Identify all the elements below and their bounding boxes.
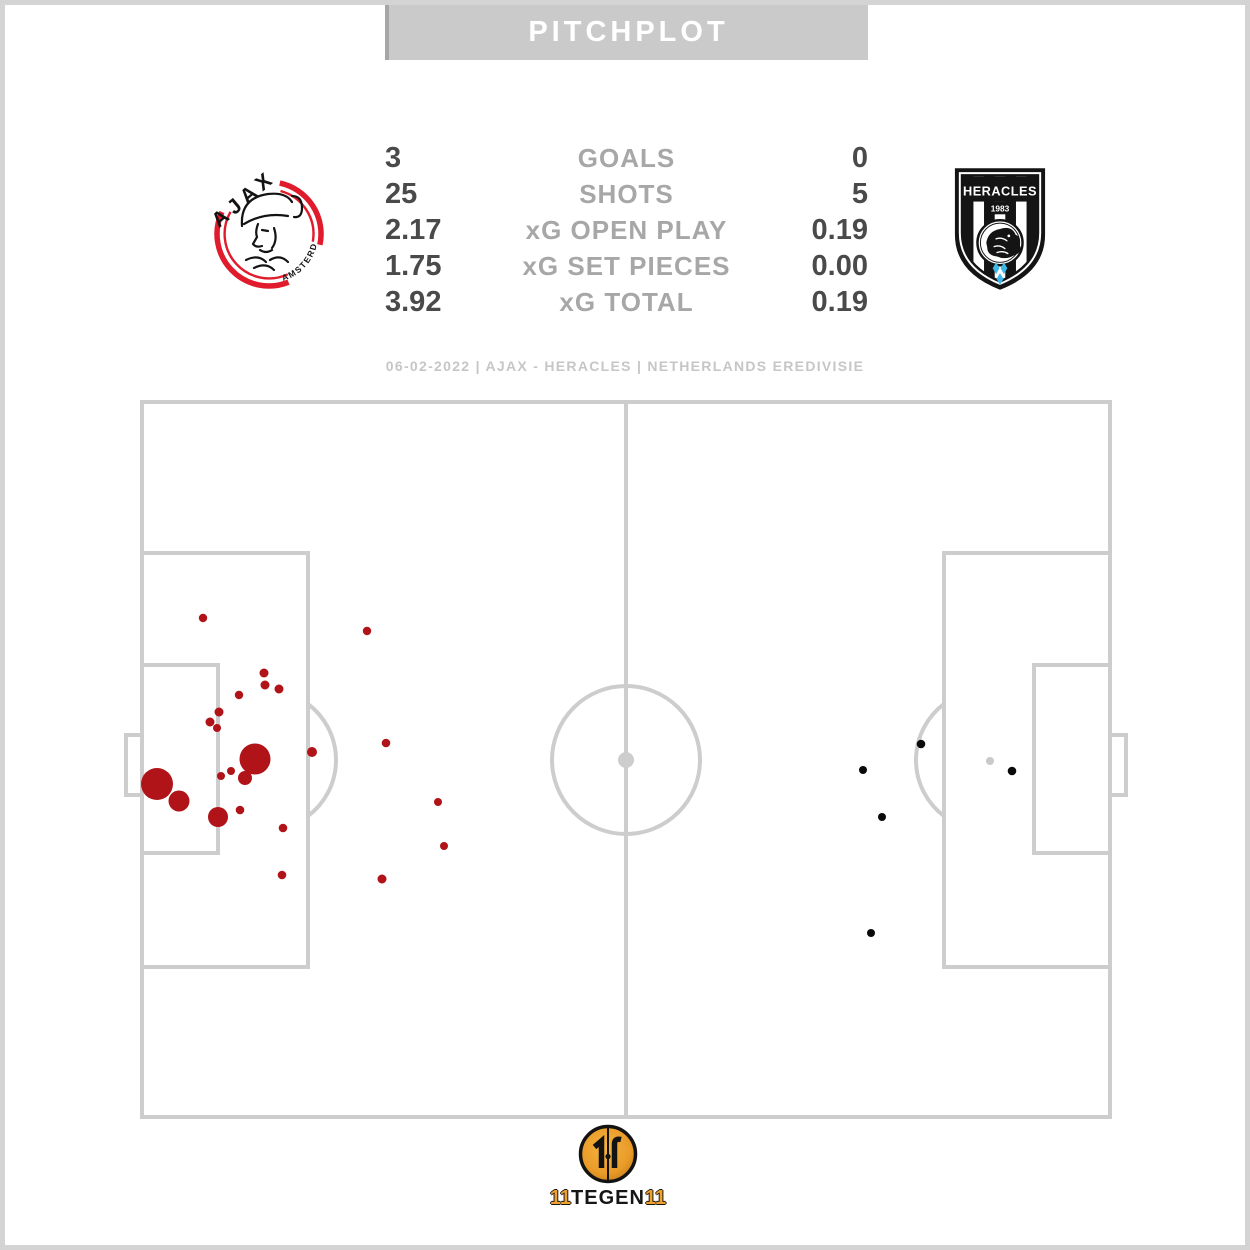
heracles-shot-marker <box>859 766 867 774</box>
stat-metric-label: xG OPEN PLAY <box>480 215 773 246</box>
stat-home-value: 3.92 <box>385 286 480 319</box>
heracles-shot-marker <box>917 740 926 749</box>
stat-metric-label: xG SET PIECES <box>480 251 773 282</box>
stat-away-value: 0.19 <box>773 286 868 319</box>
ajax-shot-marker <box>260 669 269 678</box>
shots-layer <box>141 614 1016 937</box>
left-penalty-arc <box>308 704 336 816</box>
brand-part-middle: TEGEN <box>571 1187 645 1209</box>
ajax-shot-marker <box>440 842 448 850</box>
stat-home-value: 3 <box>385 142 480 175</box>
ajax-shot-marker <box>227 767 235 775</box>
heracles-shot-marker <box>1008 767 1017 776</box>
ajax-shot-marker <box>208 807 228 827</box>
ajax-crest-icon: AJAX AMSTERDAM <box>208 170 328 296</box>
stat-home-value: 2.17 <box>385 214 480 247</box>
heracles-shot-marker <box>867 929 875 937</box>
page-title: PITCHPLOT <box>528 16 728 49</box>
ajax-shot-marker <box>199 614 207 622</box>
left-goal <box>126 735 142 795</box>
stat-away-value: 0.00 <box>773 250 868 283</box>
ajax-shot-marker <box>279 824 288 833</box>
ajax-shot-marker <box>213 724 221 732</box>
stat-away-value: 0 <box>773 142 868 175</box>
neutral-shot-marker <box>986 757 994 765</box>
ajax-shot-marker <box>235 691 243 699</box>
stats-row: 2.17xG OPEN PLAY0.19 <box>385 213 868 249</box>
right-penalty-arc <box>916 704 944 816</box>
ajax-shot-marker <box>261 681 270 690</box>
ajax-shot-marker <box>363 627 371 635</box>
ajax-shot-marker <box>240 744 271 775</box>
brand-part-left: 11 <box>550 1187 571 1209</box>
stat-metric-label: GOALS <box>480 143 773 174</box>
heracles-crest-year: 1983 <box>991 203 1010 213</box>
right-six-yard-box <box>1034 665 1110 853</box>
heracles-crest-icon: HERACLES 1983 <box>951 164 1049 294</box>
ajax-shot-marker <box>215 708 224 717</box>
ajax-shot-marker <box>434 798 442 806</box>
header-bar: PITCHPLOT <box>385 5 868 60</box>
ajax-shot-marker <box>236 806 245 815</box>
heracles-shot-marker <box>878 813 886 821</box>
stat-home-value: 25 <box>385 178 480 211</box>
brand-logo: 11TEGEN11 <box>547 1124 669 1210</box>
away-team-crest: HERACLES 1983 <box>951 164 1049 299</box>
ajax-shot-marker <box>278 871 287 880</box>
home-team-crest: AJAX AMSTERDAM <box>208 170 328 301</box>
ajax-shot-marker <box>169 791 190 812</box>
heracles-crest-name: HERACLES <box>963 184 1037 199</box>
ajax-shot-marker <box>378 875 387 884</box>
match-subtitle: 06-02-2022 | AJAX - HERACLES | NETHERLAN… <box>0 358 1250 374</box>
right-goal <box>1110 735 1126 795</box>
brand-wordmark: 11TEGEN11 <box>547 1187 669 1210</box>
center-spot <box>618 752 634 768</box>
stat-away-value: 0.19 <box>773 214 868 247</box>
stat-home-value: 1.75 <box>385 250 480 283</box>
stats-row: 3GOALS0 <box>385 141 868 177</box>
left-penalty-area <box>142 553 308 967</box>
ajax-shot-marker <box>206 718 215 727</box>
ajax-shot-marker <box>307 747 317 757</box>
left-six-yard-box <box>142 665 218 853</box>
stat-metric-label: SHOTS <box>480 179 773 210</box>
ajax-shot-marker <box>275 685 284 694</box>
ajax-shot-marker <box>238 771 252 785</box>
brand-part-right: 11 <box>645 1187 666 1209</box>
match-stats-table: 3GOALS025SHOTS52.17xG OPEN PLAY0.191.75x… <box>385 141 868 320</box>
brand-ball-icon <box>576 1124 640 1186</box>
stats-row: 3.92xG TOTAL0.19 <box>385 284 868 320</box>
ajax-shot-marker <box>217 772 225 780</box>
stats-row: 25SHOTS5 <box>385 177 868 213</box>
stat-metric-label: xG TOTAL <box>480 287 773 318</box>
stats-row: 1.75xG SET PIECES0.00 <box>385 248 868 284</box>
ajax-shot-marker <box>382 739 391 748</box>
stat-away-value: 5 <box>773 178 868 211</box>
ajax-shot-marker <box>141 768 173 800</box>
right-penalty-area <box>944 553 1110 967</box>
